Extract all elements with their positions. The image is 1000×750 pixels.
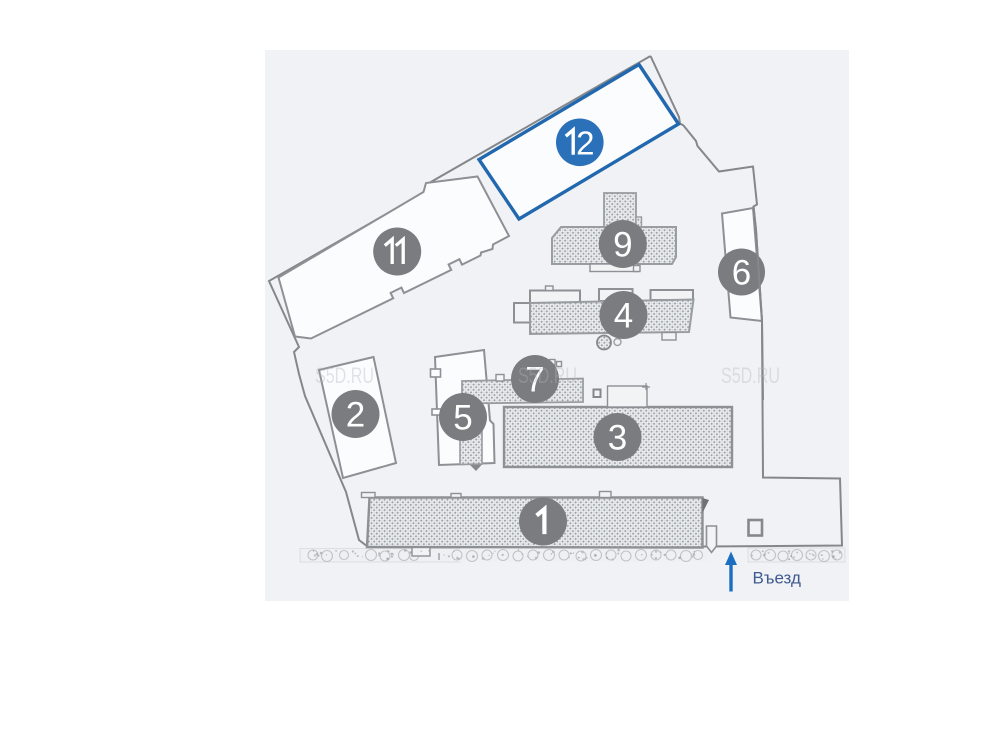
svg-text:S5D.RU: S5D.RU [518,363,577,388]
svg-text:S5D.RU: S5D.RU [721,363,780,388]
svg-text:6: 6 [732,254,751,293]
svg-text:4: 4 [614,297,633,336]
svg-text:2: 2 [346,396,365,435]
svg-text:Въезд: Въезд [753,569,801,588]
svg-text:2: 2 [576,124,594,161]
svg-text:9: 9 [613,226,632,265]
svg-text:5: 5 [453,399,472,438]
svg-text:S5D.RU: S5D.RU [315,363,374,388]
svg-text:3: 3 [608,419,627,458]
